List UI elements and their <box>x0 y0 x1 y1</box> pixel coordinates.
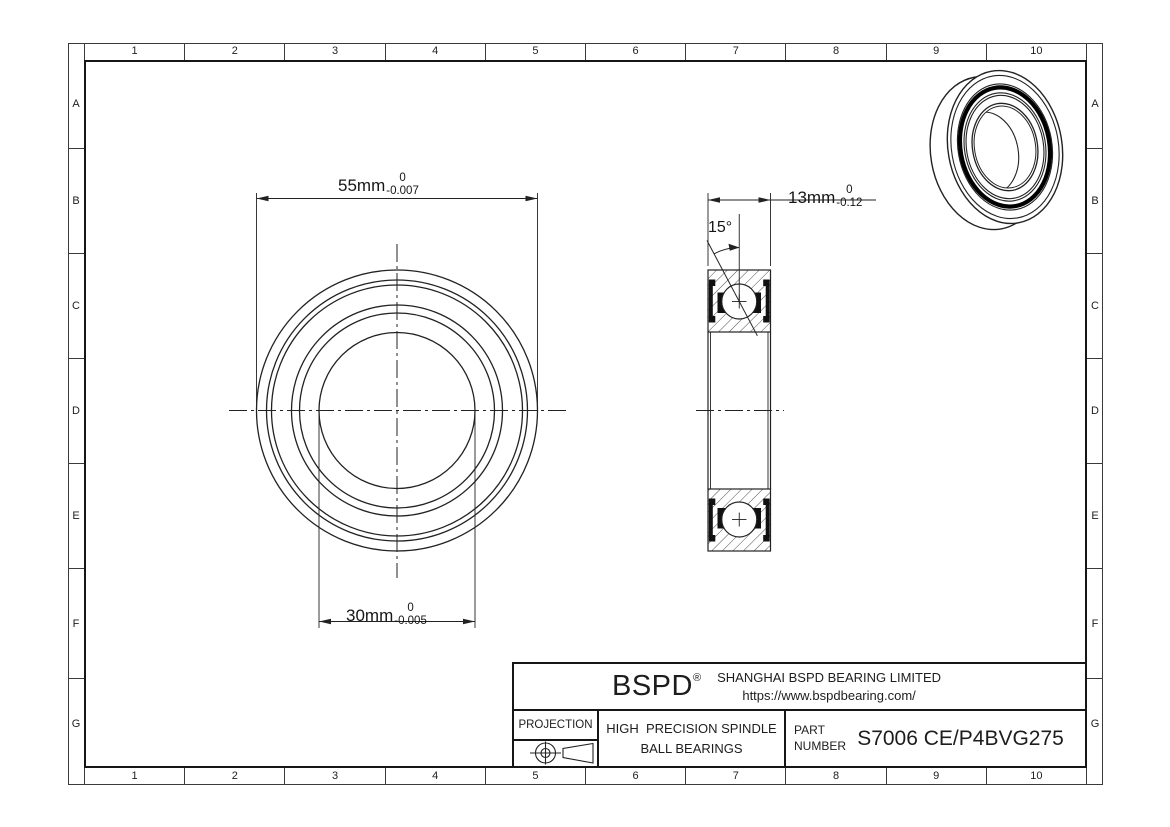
engineering-drawing-page: 1 2 3 4 5 6 7 8 9 10 1 2 3 4 5 6 7 8 9 1… <box>0 0 1170 827</box>
bore-value: 30mm <box>346 607 393 624</box>
logo-text: BSPD <box>612 670 693 702</box>
part-number-label: PART NUMBER <box>794 723 846 754</box>
first-angle-projection-icon <box>514 741 595 766</box>
od-upper-tolerance: 0 <box>399 172 405 185</box>
width-dimension-label: 13mm0-0.12 <box>788 181 862 206</box>
projection-label: PROJECTION <box>514 711 597 741</box>
contact-angle-label: 15° <box>708 219 732 237</box>
grid-row-label: A <box>68 60 84 148</box>
projection-symbol <box>514 741 597 766</box>
grid-band-right: A B C D E F G <box>1087 60 1103 768</box>
company-website: https://www.bspdbearing.com/ <box>717 687 941 705</box>
product-title-line1: HIGH PRECISION SPINDLE <box>606 719 776 739</box>
grid-col-label: 5 <box>485 43 585 60</box>
grid-col-label: 1 <box>84 768 184 785</box>
grid-col-label: 8 <box>785 768 885 785</box>
part-label-line2: NUMBER <box>794 739 846 755</box>
product-title-cell: HIGH PRECISION SPINDLE BALL BEARINGS <box>599 711 786 766</box>
grid-band-bottom: 1 2 3 4 5 6 7 8 9 10 <box>68 768 1103 785</box>
grid-band-left: A B C D E F G <box>68 60 84 768</box>
grid-band-top: 1 2 3 4 5 6 7 8 9 10 <box>68 43 1103 60</box>
bore-upper-tolerance: 0 <box>407 602 413 615</box>
od-value: 55mm <box>338 177 385 194</box>
grid-row-label: E <box>1087 463 1103 568</box>
grid-col-label: 9 <box>886 768 986 785</box>
product-title-line2: BALL BEARINGS <box>640 739 742 759</box>
part-label-line1: PART <box>794 723 846 739</box>
grid-col-label: 6 <box>585 43 685 60</box>
grid-col-label: 2 <box>184 768 284 785</box>
od-dimension-label: 55mm0-0.007 <box>338 169 419 194</box>
grid-row-label: C <box>68 253 84 358</box>
grid-row-label: B <box>68 148 84 253</box>
grid-col-label: 7 <box>685 768 785 785</box>
part-number-cell: PART NUMBER S7006 CE/P4BVG275 <box>786 711 1085 766</box>
part-number-value: S7006 CE/P4BVG275 <box>846 727 1075 751</box>
grid-col-label: 2 <box>184 43 284 60</box>
grid-row-label: B <box>1087 148 1103 253</box>
grid-row-label: F <box>1087 568 1103 678</box>
grid-col-label: 3 <box>284 768 384 785</box>
grid-row-label: G <box>68 678 84 768</box>
title-block-detail-row: PROJECTION HIGH PRECISION SPINDLE BALL B… <box>514 711 1085 766</box>
width-value: 13mm <box>788 189 835 206</box>
company-name: SHANGHAI BSPD BEARING LIMITED <box>717 669 941 687</box>
grid-row-label: E <box>68 463 84 568</box>
od-lower-tolerance: -0.007 <box>386 185 419 198</box>
projection-cell: PROJECTION <box>514 711 599 766</box>
title-block-header-row: BSPD® SHANGHAI BSPD BEARING LIMITED http… <box>514 664 1085 711</box>
company-logo: BSPD® <box>612 672 701 701</box>
grid-row-label: C <box>1087 253 1103 358</box>
grid-col-label: 10 <box>986 768 1087 785</box>
grid-col-label: 4 <box>385 43 485 60</box>
bore-dimension-label: 30mm0-0.005 <box>346 599 427 624</box>
width-upper-tolerance: 0 <box>846 184 852 197</box>
grid-col-label: 8 <box>785 43 885 60</box>
grid-col-label: 10 <box>986 43 1087 60</box>
grid-col-label: 3 <box>284 43 384 60</box>
grid-col-label: 4 <box>385 768 485 785</box>
grid-row-label: D <box>1087 358 1103 463</box>
title-block: BSPD® SHANGHAI BSPD BEARING LIMITED http… <box>512 662 1087 768</box>
grid-col-label: 1 <box>84 43 184 60</box>
width-lower-tolerance: -0.12 <box>836 197 862 210</box>
grid-row-label: D <box>68 358 84 463</box>
grid-col-label: 6 <box>585 768 685 785</box>
registered-trademark-icon: ® <box>693 672 701 684</box>
company-info: SHANGHAI BSPD BEARING LIMITED https://ww… <box>717 669 941 704</box>
grid-row-label: F <box>68 568 84 678</box>
grid-col-label: 9 <box>886 43 986 60</box>
bore-lower-tolerance: -0.005 <box>394 615 427 628</box>
grid-col-label: 5 <box>485 768 585 785</box>
grid-row-label: G <box>1087 678 1103 768</box>
grid-row-label: A <box>1087 60 1103 148</box>
grid-col-label: 7 <box>685 43 785 60</box>
